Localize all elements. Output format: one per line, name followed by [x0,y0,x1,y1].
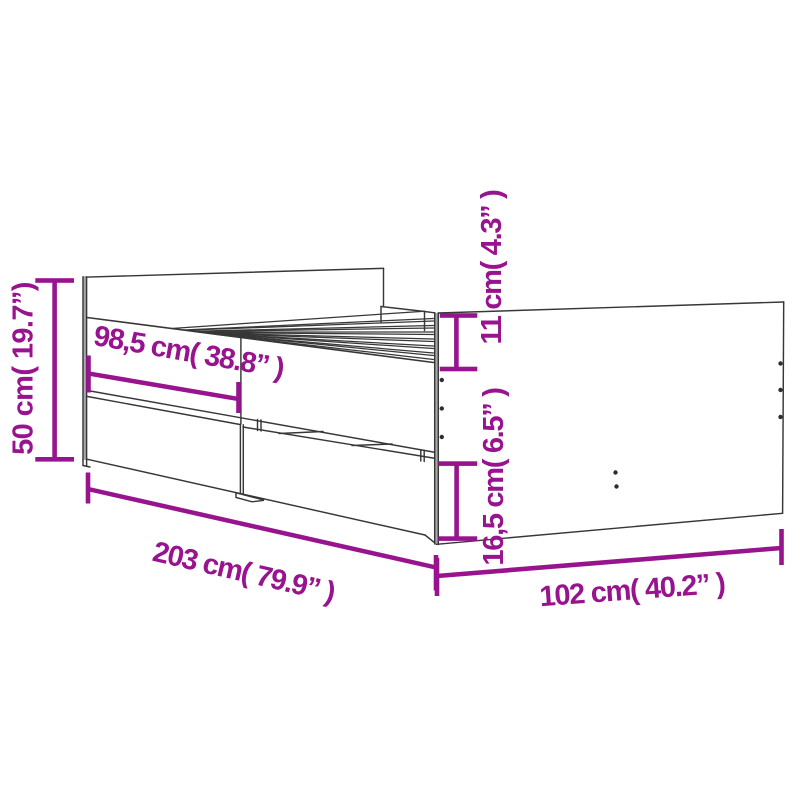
svg-text:50 cm( 19.7”): 50 cm( 19.7”) [8,282,40,455]
svg-text:11 cm( 4.3” ): 11 cm( 4.3” ) [476,190,508,345]
svg-text:16,5 cm( 6.5” ): 16,5 cm( 6.5” ) [478,388,510,566]
